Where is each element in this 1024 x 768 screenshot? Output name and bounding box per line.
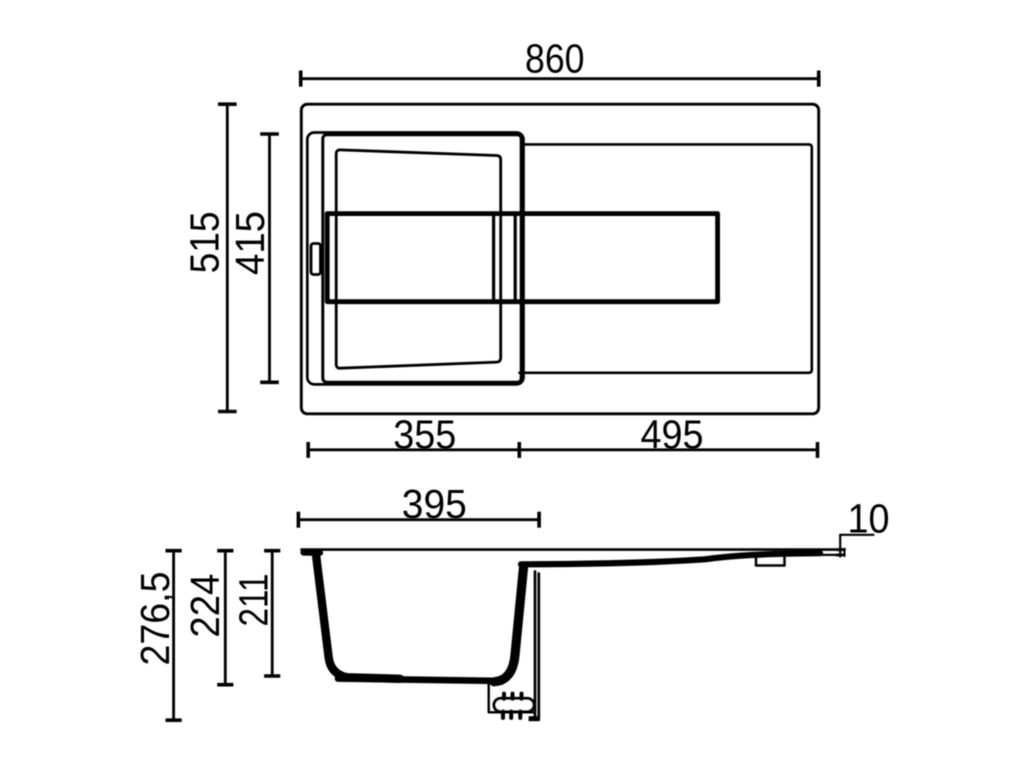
svg-text:211: 211 — [230, 574, 276, 627]
svg-text:224: 224 — [182, 574, 228, 638]
svg-text:10: 10 — [848, 496, 890, 542]
svg-text:860: 860 — [525, 35, 585, 81]
svg-text:276,5: 276,5 — [132, 572, 178, 666]
svg-text:415: 415 — [227, 211, 273, 275]
svg-text:515: 515 — [181, 211, 227, 273]
svg-text:495: 495 — [641, 412, 704, 458]
svg-text:355: 355 — [393, 412, 456, 458]
svg-text:395: 395 — [402, 481, 467, 527]
